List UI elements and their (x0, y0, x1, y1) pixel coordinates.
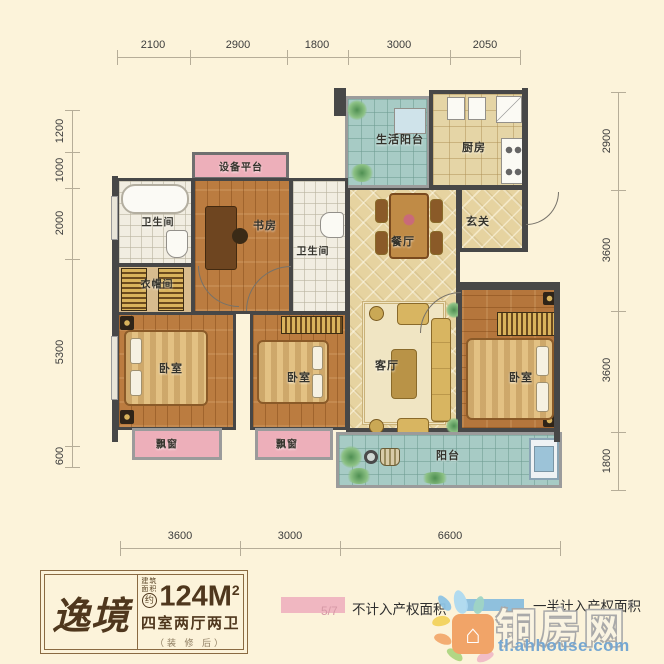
dim-tick (240, 541, 241, 556)
dim-tick (190, 50, 191, 65)
dim-tick (340, 541, 341, 556)
room-label-bathroom-1: 卫生间 (142, 214, 175, 229)
dim-tick (348, 50, 349, 65)
washing-machine-door (534, 446, 554, 472)
dining-chair (430, 231, 443, 255)
dim-label: 3600 (601, 358, 613, 382)
dim-tick (65, 188, 80, 189)
room-label-equipment-platform: 设备平台 (219, 159, 263, 174)
room-label-living-room: 客厅 (375, 357, 399, 373)
dim-label: 600 (54, 447, 66, 465)
wall-segment (522, 88, 528, 252)
wall-segment (334, 88, 346, 116)
plant-decor (350, 164, 374, 182)
plant-decor (340, 446, 362, 468)
dim-tick (611, 190, 626, 191)
dim-label: 1800 (601, 449, 613, 473)
logo-petal (435, 593, 453, 613)
unit-details: 建筑 面积 约 124M2 四室两厅两卫 （装 修 后） (138, 575, 243, 649)
dim-label: 3000 (278, 530, 302, 542)
area-prefix-line2: 面积 (141, 586, 157, 594)
dim-tick (611, 490, 626, 491)
floorplan-page: 2100 2900 1800 3000 2050 1200 1000 2000 … (0, 0, 664, 664)
room-label-bay-window-2: 飘窗 (276, 436, 298, 451)
dim-tick (117, 50, 118, 65)
dim-tick (65, 152, 80, 153)
dim-tick (120, 541, 121, 556)
dim-label: 5300 (54, 340, 66, 364)
pillow (130, 370, 142, 396)
stove (501, 138, 524, 184)
dim-tick (65, 467, 80, 468)
area-prefix-line1: 建筑 (141, 578, 157, 586)
closet (497, 312, 555, 336)
fridge (496, 96, 522, 123)
unit-layout: 四室两厅两卫 (141, 612, 240, 633)
room-label-bedroom-1: 卧室 (159, 360, 183, 376)
dim-tick (611, 92, 626, 93)
window (111, 336, 118, 400)
dim-label: 3000 (387, 39, 411, 51)
dining-chair (375, 231, 388, 255)
dim-line (72, 110, 73, 467)
dim-label: 3600 (168, 530, 192, 542)
toilet (320, 212, 344, 238)
bathtub (121, 184, 189, 214)
unit-name: 逸境 (45, 575, 138, 649)
room-label-balcony: 阳台 (436, 447, 460, 463)
room-label-bedroom-2: 卧室 (287, 369, 311, 385)
dim-label: 2000 (54, 211, 66, 235)
dim-tick (611, 432, 626, 433)
kitchen-sink (447, 97, 465, 120)
logo-petal (433, 631, 453, 647)
dim-label: 3600 (601, 238, 613, 262)
side-table (369, 306, 384, 321)
window (111, 196, 118, 240)
dim-label: 1200 (54, 119, 66, 143)
wall-segment (554, 284, 560, 442)
entry-door-arc (526, 192, 559, 225)
plant-decor (420, 472, 450, 484)
room-label-bathroom-2: 卫生间 (297, 243, 330, 258)
dim-tick (65, 446, 80, 447)
area-prefix: 建筑 面积 约 (141, 578, 157, 608)
dim-label: 1000 (54, 158, 66, 182)
approx-badge: 约 (142, 593, 157, 608)
room-label-dining: 餐厅 (391, 233, 415, 249)
dining-chair (375, 199, 388, 223)
dim-tick (560, 541, 561, 556)
logo-petal (431, 615, 450, 628)
logo-petal (451, 589, 470, 616)
dim-label: 2050 (473, 39, 497, 51)
area-value: 124M2 (159, 575, 239, 612)
room-label-kitchen: 厨房 (462, 139, 486, 155)
dim-tick (65, 110, 80, 111)
watermark: ⌂ 铜房网 ® tl.ahhouse.com (432, 588, 664, 664)
pillow (536, 382, 549, 412)
dim-label: 1800 (305, 39, 329, 51)
area-number: 124M (159, 580, 232, 612)
area-row: 建筑 面积 约 124M2 (141, 575, 239, 612)
area-exponent: 2 (232, 582, 240, 598)
unit-note: （装 修 后） (155, 636, 226, 649)
dim-tick (287, 50, 288, 65)
plant-decor (347, 100, 367, 120)
house-icon: ⌂ (452, 614, 494, 654)
dim-tick (450, 50, 451, 65)
unit-info-card-frame: 逸境 建筑 面积 约 124M2 四室两厅两卫 （装 修 后） (44, 574, 244, 650)
room-label-life-balcony: 生活阳台 (376, 131, 424, 147)
nightstand (120, 410, 134, 424)
floor-drain (364, 450, 378, 464)
dim-tick (611, 311, 626, 312)
registered-mark: ® (628, 600, 635, 611)
dim-label: 2100 (141, 39, 165, 51)
pillow (312, 346, 323, 370)
toilet (166, 230, 188, 258)
room-label-entry: 玄关 (466, 213, 490, 229)
watermark-site-url: tl.ahhouse.com (498, 636, 630, 656)
dim-line (618, 92, 619, 490)
dining-table (389, 193, 429, 259)
dining-chair (430, 199, 443, 223)
plant-decor (346, 468, 372, 484)
dim-tick (520, 50, 521, 65)
dim-label: 2900 (601, 129, 613, 153)
page-indicator: 5/7 (321, 604, 338, 618)
dim-tick (65, 259, 80, 260)
dim-line (117, 57, 520, 58)
wall-segment (458, 282, 560, 288)
room-label-master-bedroom: 卧室 (509, 369, 533, 385)
unit-info-card: 逸境 建筑 面积 约 124M2 四室两厅两卫 （装 修 后） (40, 570, 248, 654)
desk-chair (232, 228, 248, 244)
pillow (312, 374, 323, 398)
dim-label: 6600 (438, 530, 462, 542)
nightstand (120, 316, 134, 330)
closet (281, 316, 343, 334)
kitchen-sink (468, 97, 486, 120)
dim-label: 2900 (226, 39, 250, 51)
pillow (130, 338, 142, 364)
room-label-study: 书房 (253, 217, 277, 233)
room-label-cloakroom: 衣帽间 (141, 276, 174, 291)
room-label-bay-window-1: 飘窗 (156, 436, 178, 451)
pillow (536, 346, 549, 376)
laundry-basket (380, 448, 400, 466)
logo-petal (472, 595, 486, 615)
sofa (431, 318, 451, 422)
